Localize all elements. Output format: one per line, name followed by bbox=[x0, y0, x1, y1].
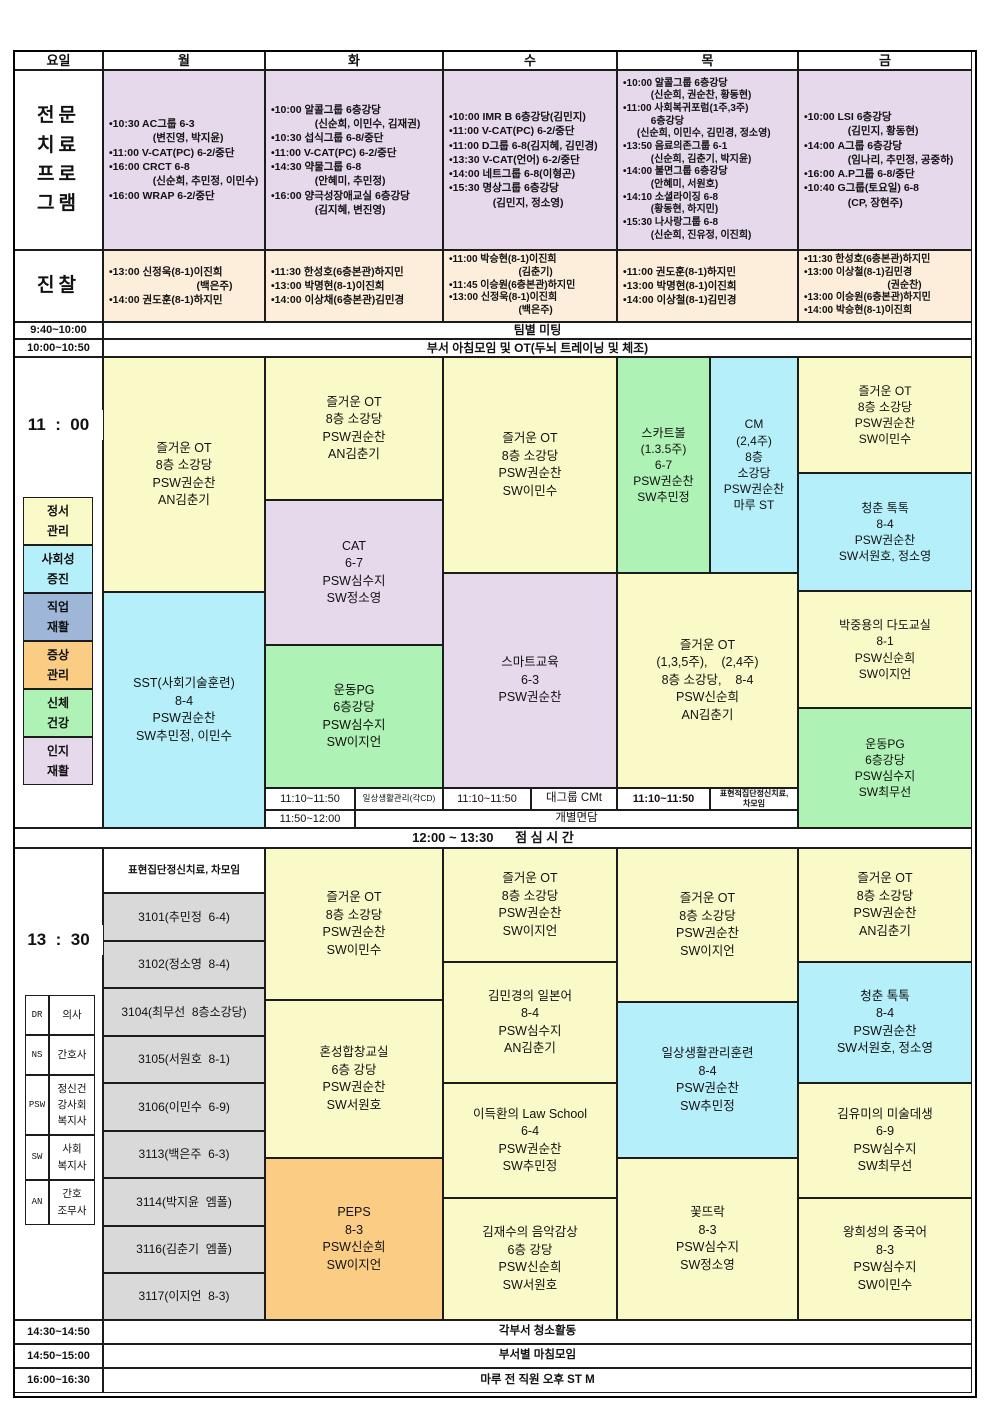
legend-symptom-management: 증상 관리 bbox=[23, 641, 93, 689]
block-tue-13-peps: PEPS 8-3 PSW신순희 SW이지언 bbox=[265, 1158, 443, 1320]
block-fri-13-art-drawing: 김유미의 미술데생 6-9 PSW심수지 SW최무선 bbox=[798, 1083, 972, 1198]
legend-physical-health: 신체 건강 bbox=[23, 689, 93, 737]
room-3104: 3104(최무선 8층소강당) bbox=[103, 988, 265, 1036]
legend-label-nurse-aide: 간호 조무사 bbox=[49, 1180, 95, 1225]
team-meeting-time: 9:40~10:00 bbox=[14, 322, 103, 339]
block-thu-11-happy-ot: 즐거운 OT (1,3,5주), (2,4주) 8층 소강당, 8-4 PSW신… bbox=[617, 573, 798, 788]
block-mon-11-happy-ot: 즐거운 OT 8층 소강당 PSW권순찬 AN김춘기 bbox=[103, 357, 265, 592]
block-tue-13-mixed-choir: 혼성합창교실 6층 강당 PSW권순찬 SW서원호 bbox=[265, 1000, 443, 1158]
subrow-tue-1110-time: 11:10~11:50 bbox=[265, 788, 355, 810]
program-cell-thu: •10:00 알콜그룹 6층강당 (신순희, 권순찬, 황동현) •11:00 … bbox=[617, 70, 798, 250]
block-thu-11-skatball: 스카트볼 (1.3.5주) 6-7 PSW권순찬 SW추민정 bbox=[617, 357, 710, 573]
exam-cell-thu: •11:00 권도훈(8-1)하지민 •13:00 박명현(8-1)이진희 •1… bbox=[617, 250, 798, 322]
room-3106: 3106(이민수 6-9) bbox=[103, 1083, 265, 1131]
legend-label-mental-health-sw: 정신건 강사회 복지사 bbox=[49, 1075, 95, 1135]
block-thu-13-flower-garden: 꽃뜨락 8-3 PSW심수지 SW정소영 bbox=[617, 1158, 798, 1320]
session13-time-label: 13 : 30 bbox=[14, 925, 103, 955]
session11-time-label: 11 : 00 bbox=[14, 410, 103, 440]
legend-label-social-worker: 사회 복지사 bbox=[49, 1135, 95, 1180]
afternoon-st-row: 마루 전 직원 오후 ST M bbox=[103, 1368, 972, 1393]
legend-label-doctor: 의사 bbox=[49, 995, 95, 1035]
block-wed-13-japanese: 김민경의 일본어 8-4 PSW심수지 AN김춘기 bbox=[443, 962, 617, 1083]
exam-row-label: 진찰 bbox=[14, 250, 103, 322]
block-mon-13-expressive-group: 표현집단정신치료, 차모임 bbox=[103, 848, 265, 893]
subrow-wed-1110-time: 11:10~11:50 bbox=[443, 788, 531, 810]
subrow-thu-1110-time: 11:10~11:50 bbox=[617, 788, 710, 810]
exam-cell-mon: •13:00 신정욱(8-1)이진희 (백은주) •14:00 권도훈(8-1)… bbox=[103, 250, 265, 322]
header-monday: 월 bbox=[103, 51, 265, 70]
block-thu-13-happy-ot: 즐거운 OT 8층 소강당 PSW권순찬 SW이지언 bbox=[617, 848, 798, 1002]
block-fri-11-happy-ot: 즐거운 OT 8층 소강당 PSW권순찬 SW이민수 bbox=[798, 357, 972, 473]
header-friday: 금 bbox=[798, 51, 972, 70]
legend-code-dr: DR bbox=[25, 995, 49, 1035]
block-tue-13-happy-ot: 즐거운 OT 8층 소강당 PSW권순찬 SW이민수 bbox=[265, 848, 443, 1000]
block-wed-11-happy-ot: 즐거운 OT 8층 소강당 PSW권순찬 SW이민수 bbox=[443, 357, 617, 573]
block-mon-11-sst: SST(사회기술훈련) 8-4 PSW권순찬 SW추민정, 이민수 bbox=[103, 592, 265, 828]
block-tue-11-cat: CAT 6-7 PSW심수지 SW정소영 bbox=[265, 500, 443, 645]
room-3114: 3114(박지윤 엠폴) bbox=[103, 1178, 265, 1226]
closing-meeting-row: 부서별 마침모임 bbox=[103, 1344, 972, 1368]
legend-code-psw: PSW bbox=[25, 1075, 49, 1135]
block-tue-11-happy-ot: 즐거운 OT 8층 소강당 PSW권순찬 AN김춘기 bbox=[265, 357, 443, 500]
block-fri-13-chinese: 왕희성의 중국어 8-3 PSW심수지 SW이민수 bbox=[798, 1198, 972, 1320]
block-wed-13-music-listening: 김재수의 음악감상 6층 강당 PSW신순희 SW서원호 bbox=[443, 1198, 617, 1320]
legend-code-sw: SW bbox=[25, 1135, 49, 1180]
block-thu-11-cm: CM (2,4주) 8층 소강당 PSW권순찬 마루 ST bbox=[710, 357, 798, 573]
program-row-label: 전문 치료 프로 그램 bbox=[14, 70, 103, 250]
block-fri-11-youth-talk: 청춘 톡톡 8-4 PSW권순찬 SW서원호, 정소영 bbox=[798, 473, 972, 591]
room-3102: 3102(정소영 8-4) bbox=[103, 941, 265, 988]
block-wed-13-happy-ot: 즐거운 OT 8층 소강당 PSW권순찬 SW이지언 bbox=[443, 848, 617, 962]
exam-cell-wed: •11:00 박승현(8-1)이진희 (김춘기) •11:45 이승원(6층본관… bbox=[443, 250, 617, 322]
legend-emotion-management: 정서 관리 bbox=[23, 497, 93, 545]
header-day-col: 요일 bbox=[14, 51, 103, 70]
block-fri-11-exercise-pg: 운동PG 6층강당 PSW심수지 SW최무선 bbox=[798, 708, 972, 828]
block-fri-13-youth-talk: 청춘 톡톡 8-4 PSW권순찬 SW서원호, 정소영 bbox=[798, 962, 972, 1083]
block-thu-13-daily-life-training: 일상생활관리훈련 8-4 PSW권순찬 SW추민정 bbox=[617, 1002, 798, 1158]
block-wed-13-law-school: 이득환의 Law School 6-4 PSW권순찬 SW추민정 bbox=[443, 1083, 617, 1198]
program-cell-fri: •10:00 LSI 6층강당 (김민지, 황동현) •14:00 A그룹 6층… bbox=[798, 70, 972, 250]
exam-cell-fri: •11:30 한성호(6층본관)하지민 •13:00 이상철(8-1)김민경 (… bbox=[798, 250, 972, 322]
team-meeting-row: 팀별 미팅 bbox=[103, 322, 972, 339]
legend-code-ns: NS bbox=[25, 1035, 49, 1075]
cleaning-row: 각부서 청소활동 bbox=[103, 1320, 972, 1344]
morning-meeting-time: 10:00~10:50 bbox=[14, 339, 103, 357]
subrow-individual-consult: 개별면담 bbox=[355, 810, 798, 828]
closing-meeting-time: 14:50~15:00 bbox=[14, 1344, 103, 1368]
weekly-schedule-page: 요일 월 화 수 목 금 전문 치료 프로 그램 •10:30 AC그룹 6-3… bbox=[0, 0, 992, 1403]
legend-social-skills: 사회성 증진 bbox=[23, 545, 93, 593]
cleaning-time: 14:30~14:50 bbox=[14, 1320, 103, 1344]
block-wed-11-smart-edu: 스마트교육 6-3 PSW권순찬 bbox=[443, 573, 617, 788]
legend-cognitive-rehab: 인지 재활 bbox=[23, 737, 93, 785]
room-3116: 3116(김춘기 엠폴) bbox=[103, 1226, 265, 1273]
room-3113: 3113(백은주 6-3) bbox=[103, 1131, 265, 1178]
room-3101: 3101(추민정 6-4) bbox=[103, 893, 265, 941]
room-3105: 3105(서원호 8-1) bbox=[103, 1036, 265, 1083]
legend-vocational-rehab: 직업 재활 bbox=[23, 593, 93, 641]
subrow-thu-expressive-group: 표현적집단정신치료, 차모임 bbox=[710, 788, 798, 810]
room-3117: 3117(이지언 8-3) bbox=[103, 1273, 265, 1320]
subrow-tue-daily-life-care: 일상생활관리(각CD) bbox=[355, 788, 443, 810]
exam-cell-tue: •11:30 한성호(6층본관)하지민 •13:00 박명현(8-1)이진희 •… bbox=[265, 250, 443, 322]
morning-meeting-row: 부서 아침모임 및 OT(두뇌 트레이닝 및 체조) bbox=[103, 339, 972, 357]
program-cell-tue: •10:00 알콜그룹 6층강당 (신순희, 이민수, 김재권) •10:30 … bbox=[265, 70, 443, 250]
header-thursday: 목 bbox=[617, 51, 798, 70]
header-wednesday: 수 bbox=[443, 51, 617, 70]
program-cell-wed: •10:00 IMR B 6층강당(김민지) •11:00 V-CAT(PC) … bbox=[443, 70, 617, 250]
legend-code-an: AN bbox=[25, 1180, 49, 1225]
program-cell-mon: •10:30 AC그룹 6-3 (변진영, 박지윤) •11:00 V-CAT(… bbox=[103, 70, 265, 250]
legend-label-nurse: 간호사 bbox=[49, 1035, 95, 1075]
subrow-wed-large-group-cmt: 대그룹 CMt bbox=[531, 788, 617, 810]
lunch-row: 12:00 ~ 13:30 점 심 시 간 bbox=[14, 828, 972, 848]
block-fri-13-happy-ot: 즐거운 OT 8층 소강당 PSW권순찬 AN김춘기 bbox=[798, 848, 972, 962]
block-tue-11-exercise-pg: 운동PG 6층강당 PSW심수지 SW이지언 bbox=[265, 645, 443, 788]
block-fri-11-tea-class: 박중용의 다도교실 8-1 PSW신순희 SW이지언 bbox=[798, 591, 972, 708]
afternoon-st-time: 16:00~16:30 bbox=[14, 1368, 103, 1393]
header-tuesday: 화 bbox=[265, 51, 443, 70]
subrow-tue-1150-time: 11:50~12:00 bbox=[265, 810, 355, 828]
